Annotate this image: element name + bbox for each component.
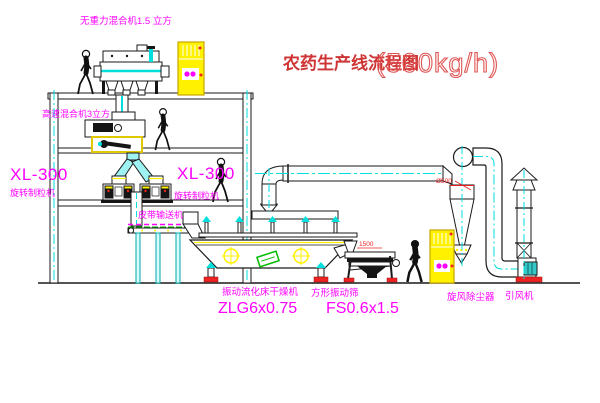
dryer-top-rail <box>199 233 357 237</box>
worker-roof <box>78 50 93 94</box>
granulator-right <box>138 176 173 203</box>
dim-screen-length: 1500 <box>359 241 374 248</box>
label-screen-model: FS0.6x1.5 <box>326 300 399 317</box>
label-conveyor: 皮带输送机 <box>138 209 183 220</box>
cad-flow-diagram: 无重力混合机1.5 立方 高速混合机3立方 XL-300 旋转制粒机 XL-30… <box>0 0 600 403</box>
cyclone-to-fan-pipe <box>473 148 518 277</box>
label-granulator-left-name: 旋转制粒机 <box>10 187 55 198</box>
diagram-svg: 无重力混合机1.5 立方 高速混合机3立方 XL-300 旋转制粒机 XL-30… <box>0 0 600 403</box>
dryer-hood <box>252 211 338 219</box>
fan-motor <box>524 262 537 275</box>
belt-conveyor <box>128 225 198 284</box>
gravity-free-mixer <box>94 45 169 95</box>
cabinet-glyph <box>436 263 441 268</box>
label-cyclone: 旋风除尘器 <box>447 291 495 303</box>
dryer-feed-chute <box>183 212 198 224</box>
worker-ground <box>407 240 421 282</box>
dryer-foot <box>204 277 218 282</box>
label-dryer-model: ZLG6x0.75 <box>218 300 297 317</box>
cabinet-glyph <box>184 71 189 76</box>
dim-cyclone-diameter: Ø500 <box>436 178 452 185</box>
label-dryer-name: 振动流化床干燥机 <box>222 286 299 298</box>
granulator-discharge-duct <box>131 192 142 226</box>
page-title-capacity: (500kg/h) <box>376 48 499 78</box>
exhaust-duct <box>255 164 452 212</box>
fluid-bed-dryer <box>183 204 357 282</box>
label-fan: 引风机 <box>505 290 534 302</box>
fan-base <box>516 277 542 282</box>
label-screen-name: 方形振动筛 <box>311 287 359 299</box>
control-cabinet-roof <box>178 42 204 95</box>
label-top-mixer: 无重力混合机1.5 立方 <box>80 15 172 27</box>
control-cabinet-ground <box>430 230 454 283</box>
worker-floor2 <box>155 109 169 150</box>
label-granulator-right-model: XL-300 <box>177 164 235 183</box>
label-granulator-right-name: 旋转制粒机 <box>174 190 219 201</box>
conveyor-support <box>136 233 140 283</box>
label-granulator-left-model: XL-300 <box>10 165 68 184</box>
floor2-slab <box>50 148 251 153</box>
label-hs-mixer: 高速混合机3立方 <box>42 108 110 119</box>
